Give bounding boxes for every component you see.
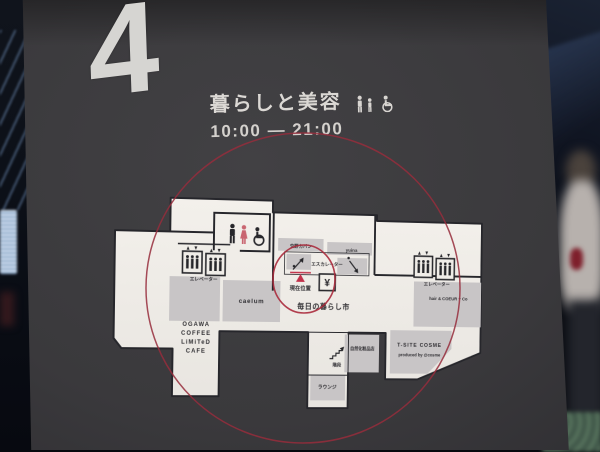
window-blind-blur <box>0 210 17 274</box>
tenant-label-hair-salon: hair & COEUR + Co <box>429 296 468 301</box>
floor-title: 暮らしと美容 <box>209 85 342 117</box>
lounge-label: ラウンジ <box>318 384 337 391</box>
floor-title-group: 暮らしと美容 10:00 — 21:00 <box>209 84 401 142</box>
tenant-block-cosmetics <box>344 334 379 372</box>
red-bag-blur <box>570 248 583 270</box>
escalator-block-left <box>286 254 311 270</box>
tenant-label-daily-market: 毎日の暮らし市 <box>297 302 350 312</box>
tenant-label-tsite-cosme-sub: produced by @cosme <box>398 352 440 357</box>
svg-text:COFFEE: COFFEE <box>181 331 211 337</box>
tenant-label-yuina: yuina <box>346 248 358 254</box>
svg-text:CAFE: CAFE <box>186 349 206 355</box>
floor-map: エレベーター エレベーター <box>108 190 485 422</box>
adult-icon <box>358 96 363 113</box>
svg-text:OGAWA: OGAWA <box>182 322 210 328</box>
wheelchair-icon <box>383 95 392 111</box>
atm-yen-symbol: ¥ <box>324 277 331 289</box>
bystander-legs-blur <box>568 300 600 420</box>
tenant-label-caelum: caelum <box>239 298 265 305</box>
tenant-block-hair-salon <box>413 281 481 327</box>
tenant-block-unlabeled <box>169 276 220 321</box>
floor-number: 4 <box>86 0 161 119</box>
stairs-label: 階段 <box>333 362 342 369</box>
child-icon <box>368 98 372 112</box>
bystander-jacket-blur <box>560 180 600 310</box>
atm: ¥ <box>319 274 335 291</box>
tenant-label-tsite-cosme: T-SITE COSME <box>397 343 442 349</box>
svg-text:LiMiTeD: LiMiTeD <box>181 340 211 346</box>
amenity-icons <box>355 94 401 113</box>
dim-red-blur <box>0 292 14 326</box>
